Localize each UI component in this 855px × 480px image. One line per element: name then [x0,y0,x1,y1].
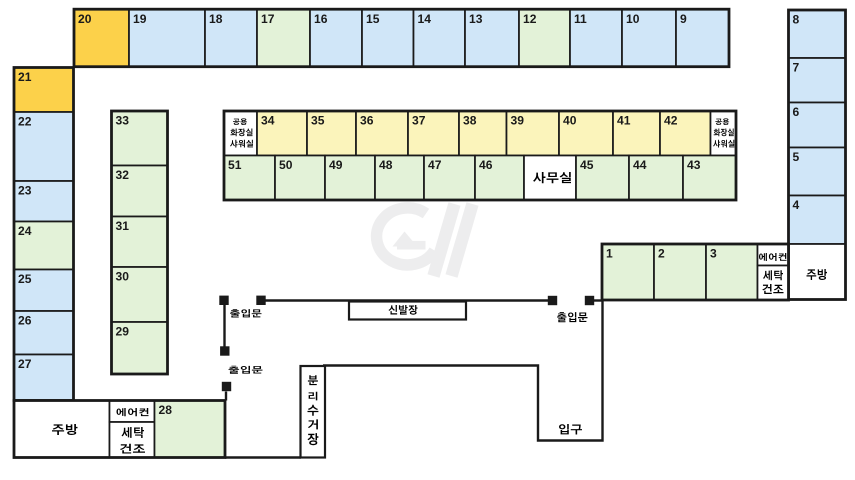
svg-text:13: 13 [469,12,483,26]
svg-text:27: 27 [18,357,32,371]
svg-text:1: 1 [606,247,613,261]
svg-text:12: 12 [523,12,537,26]
svg-text:14: 14 [418,12,432,26]
svg-text:9: 9 [680,12,687,26]
svg-text:43: 43 [687,158,701,172]
svg-text:34: 34 [261,114,275,128]
svg-text:3: 3 [710,247,717,261]
svg-text:38: 38 [463,114,477,128]
svg-text:47: 47 [428,158,442,172]
svg-text:23: 23 [18,184,32,198]
svg-text:33: 33 [116,114,130,128]
svg-text:24: 24 [18,224,32,238]
svg-text:16: 16 [314,12,328,26]
svg-text:8: 8 [793,13,800,27]
svg-text:39: 39 [511,114,525,128]
svg-text:15: 15 [366,12,380,26]
svg-text:18: 18 [209,12,223,26]
svg-text:50: 50 [279,158,293,172]
svg-text:48: 48 [379,158,393,172]
svg-text:22: 22 [18,115,32,129]
svg-text:40: 40 [563,114,577,128]
svg-text:46: 46 [479,158,493,172]
svg-text:35: 35 [311,114,325,128]
svg-text:26: 26 [18,314,32,328]
svg-text:4: 4 [793,198,800,212]
svg-text:30: 30 [116,270,130,284]
svg-text:6: 6 [793,105,800,119]
svg-text:28: 28 [159,403,173,417]
svg-text:17: 17 [261,12,275,26]
svg-text:2: 2 [658,247,665,261]
svg-text:49: 49 [329,158,343,172]
svg-text:45: 45 [580,158,594,172]
svg-text:36: 36 [360,114,374,128]
svg-text:21: 21 [18,70,32,84]
svg-text:20: 20 [78,12,92,26]
svg-text:31: 31 [116,219,130,233]
svg-text:5: 5 [793,150,800,164]
svg-text:44: 44 [633,158,647,172]
svg-text:11: 11 [574,12,587,26]
svg-text:42: 42 [664,114,678,128]
svg-text:25: 25 [18,272,32,286]
svg-text:51: 51 [228,158,242,172]
svg-text:10: 10 [626,12,640,26]
svg-text:37: 37 [412,114,426,128]
svg-text:19: 19 [133,12,147,26]
svg-text:41: 41 [617,114,631,128]
svg-text:32: 32 [116,168,130,182]
svg-text:7: 7 [793,61,800,75]
svg-text:29: 29 [116,325,130,339]
